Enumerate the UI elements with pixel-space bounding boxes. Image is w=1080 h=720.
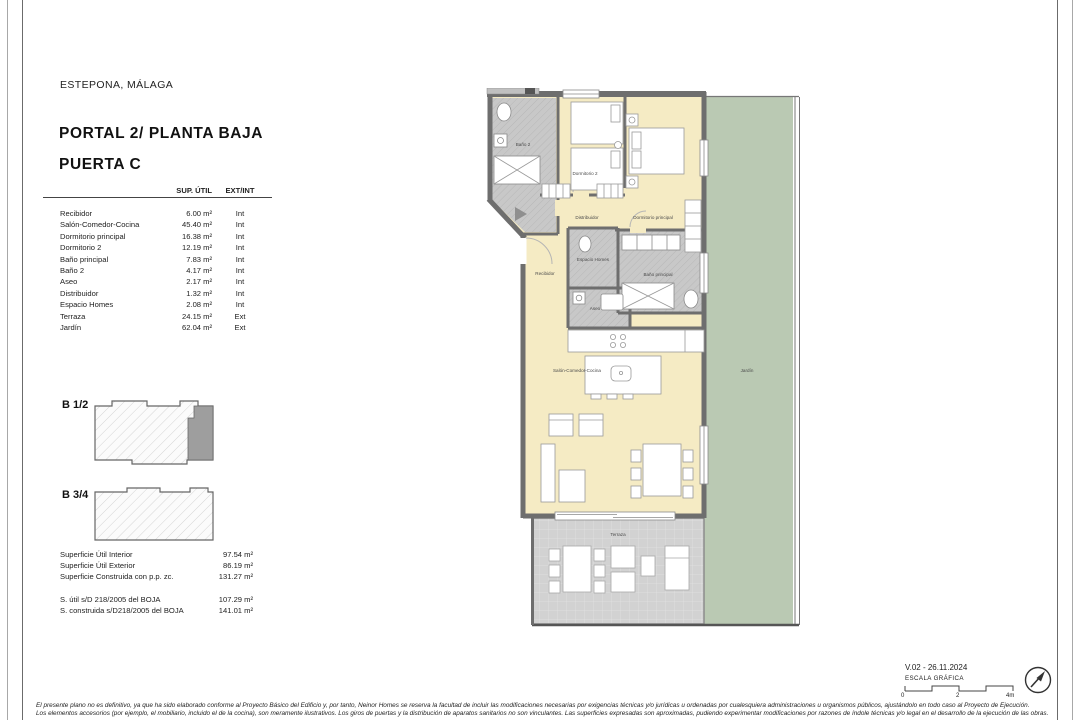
room-label-dormitorio2: Dormitorio 2 (572, 171, 597, 176)
frame-right-inner (1057, 0, 1058, 720)
room-label-aseo: Aseo (590, 306, 601, 311)
room-name: Baño 2 (60, 266, 84, 275)
room-name: Dormitorio principal (60, 232, 125, 241)
room-name: Aseo (60, 277, 77, 286)
key-plan-label-b34: B 3/4 (62, 489, 88, 501)
room-area: 1.32 m² (130, 289, 212, 298)
room-area: 12.19 m² (130, 243, 212, 252)
summary-label: S. útil s/D 218/2005 del BOJA (60, 595, 160, 604)
room-name: Baño principal (60, 255, 108, 264)
summary-value: 97.54 m² (165, 550, 253, 559)
room-name: Jardín (60, 323, 81, 332)
table-row: Dormitorio principal16.38 m²Int (0, 232, 280, 243)
table-row: Espacio Homes2.08 m²Int (0, 300, 280, 311)
room-type: Int (212, 220, 268, 229)
room-type: Int (212, 289, 268, 298)
col-header-ext-int: EXT/INT (212, 186, 268, 195)
room-label-dormitorio-principal: Dormitorio principal (633, 215, 673, 220)
summary-value: 107.29 m² (165, 595, 253, 604)
table-row: Baño principal7.83 m²Int (0, 255, 280, 266)
room-name: Terraza (60, 312, 85, 321)
table-row: Salón-Comedor-Cocina45.40 m²Int (0, 220, 280, 231)
espacio-homes-fixture (579, 236, 591, 252)
room-label-terraza: Terraza (610, 532, 626, 537)
summary-value: 141.01 m² (165, 606, 253, 615)
key-plan-b12 (92, 394, 220, 468)
room-area: 2.17 m² (130, 277, 212, 286)
room-type: Int (212, 232, 268, 241)
table-row: Recibidor6.00 m²Int (0, 209, 280, 220)
room-type: Int (212, 255, 268, 264)
room-name: Distribuidor (60, 289, 98, 298)
table-row: Dormitorio 212.19 m²Int (0, 243, 280, 254)
room-label-jardin: Jardín (741, 368, 754, 373)
summary-value: 86.19 m² (165, 561, 253, 570)
room-label-bano2: Baño 2 (516, 142, 531, 147)
table-row: Aseo2.17 m²Int (0, 277, 280, 288)
page-title-line1: PORTAL 2/ PLANTA BAJA (59, 125, 263, 143)
frame-right-outer (1072, 0, 1073, 720)
key-plan-b34 (92, 484, 220, 544)
table-header-rule (43, 197, 272, 198)
disclaimer-line1: El presente plano no es definitivo, ya q… (36, 702, 1048, 709)
garden-area (704, 97, 793, 625)
summary-row-boja: S. construida s/D218/2005 del BOJA141.01… (0, 606, 280, 617)
floor-plan: Baño 2 Dormitorio 2 Distribuidor Dormito… (485, 88, 815, 638)
disclaimer-line2: Los elementos accesorios (por ejemplo, e… (36, 710, 1048, 717)
page-title-line2: PUERTA C (59, 156, 141, 174)
room-name: Dormitorio 2 (60, 243, 101, 252)
room-label-distribuidor: Distribuidor (575, 215, 599, 220)
room-label-salon: Salón-Comedor-Cocina (553, 368, 601, 373)
room-type: Ext (212, 323, 268, 332)
room-area: 2.08 m² (130, 300, 212, 309)
room-type: Ext (212, 312, 268, 321)
summary-label: Superficie Útil Exterior (60, 561, 135, 570)
room-type: Int (212, 277, 268, 286)
room-area: 45.40 m² (130, 220, 212, 229)
room-name: Salón-Comedor-Cocina (60, 220, 139, 229)
room-area: 16.38 m² (130, 232, 212, 241)
summary-row: Superficie Construida con p.p. zc.131.27… (0, 572, 280, 583)
scale-label: ESCALA GRÁFICA (905, 675, 964, 682)
room-area: 4.17 m² (130, 266, 212, 275)
landing-detail (525, 88, 535, 94)
key-plan-outline (95, 488, 213, 540)
table-row: Distribuidor1.32 m²Int (0, 289, 280, 300)
table-row: Jardín62.04 m²Ext (0, 323, 280, 334)
room-type: Int (212, 300, 268, 309)
summary-label: Superficie Útil Interior (60, 550, 133, 559)
version-label: V.02 - 26.11.2024 (905, 663, 967, 672)
summary-value: 131.27 m² (165, 572, 253, 581)
room-name: Espacio Homes (60, 300, 113, 309)
summary-row-boja: S. útil s/D 218/2005 del BOJA107.29 m² (0, 595, 280, 606)
scale-tick-2: 2 (956, 693, 959, 699)
room-area: 62.04 m² (130, 323, 212, 332)
room-name: Recibidor (60, 209, 92, 218)
room-area: 7.83 m² (130, 255, 212, 264)
key-plan-label-b12: B 1/2 (62, 399, 88, 411)
room-label-espacio-homes: Espacio Homes (577, 257, 610, 262)
summary-row: Superficie Útil Interior97.54 m² (0, 550, 280, 561)
scale-tick-0: 0 (901, 693, 904, 699)
col-header-sup-util: SUP. ÚTIL (130, 186, 212, 195)
plan-sheet: ESTEPONA, MÁLAGA PORTAL 2/ PLANTA BAJA P… (0, 0, 1080, 720)
table-row: Baño 24.17 m²Int (0, 266, 280, 277)
north-arrow-icon (1022, 664, 1054, 696)
summary-row: Superficie Útil Exterior86.19 m² (0, 561, 280, 572)
room-type: Int (212, 266, 268, 275)
table-row: Terraza24.15 m²Ext (0, 312, 280, 323)
location-label: ESTEPONA, MÁLAGA (60, 79, 173, 91)
room-label-bano-principal: Baño principal (643, 272, 672, 277)
room-area: 24.15 m² (130, 312, 212, 321)
room-area: 6.00 m² (130, 209, 212, 218)
room-type: Int (212, 209, 268, 218)
room-type: Int (212, 243, 268, 252)
graphic-scale-bar (903, 682, 1021, 694)
room-label-recibidor: Recibidor (535, 271, 555, 276)
summary-label: Superficie Construida con p.p. zc. (60, 572, 174, 581)
scale-tick-4m: 4m (1006, 693, 1014, 699)
